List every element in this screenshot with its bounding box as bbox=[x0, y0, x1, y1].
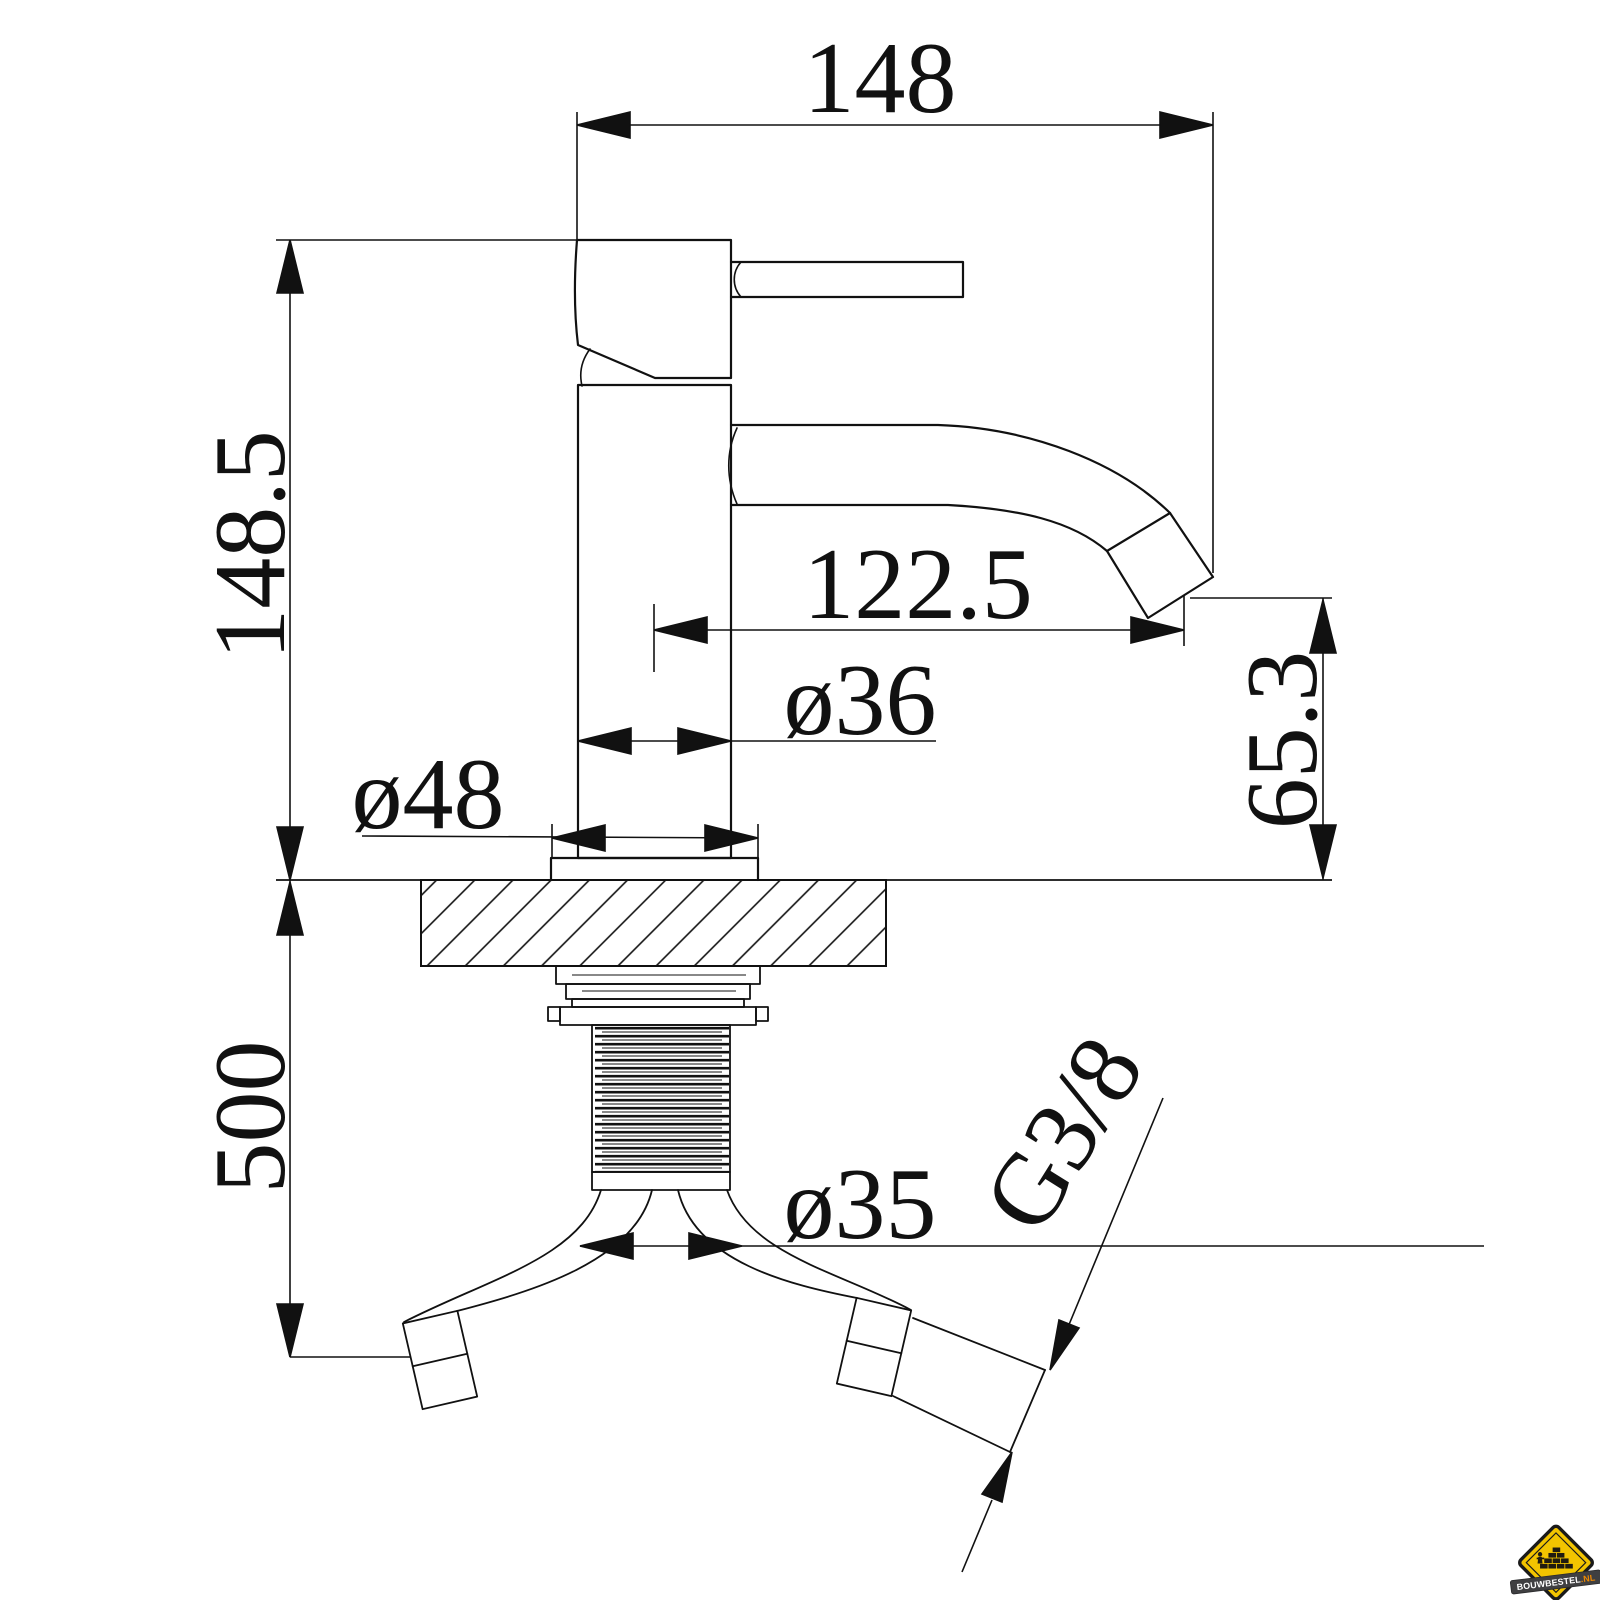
right-hose-connector bbox=[837, 1298, 911, 1396]
dim-base-diameter: ø48 bbox=[352, 738, 759, 858]
arrow-up bbox=[277, 240, 303, 293]
dim-base-diameter-label: ø48 bbox=[352, 738, 505, 851]
bouwbestel-logo: BOUWBESTEL.NL bbox=[1510, 1525, 1600, 1600]
faucet-cap bbox=[575, 240, 731, 378]
dim-outlet-height: 65.3 bbox=[1190, 598, 1339, 880]
handle-lever bbox=[731, 262, 963, 297]
dim-body-diameter-label: ø36 bbox=[784, 644, 937, 757]
supply-hoses bbox=[403, 1190, 1045, 1452]
callout-thread-size-label: G3/8 bbox=[962, 1018, 1166, 1251]
arrow-right bbox=[1131, 617, 1184, 643]
right-hose-end-face bbox=[1010, 1370, 1045, 1452]
arrow-left bbox=[580, 1233, 633, 1259]
left-hose-connector bbox=[403, 1311, 477, 1409]
lock-nut-tab-right bbox=[756, 1007, 768, 1021]
lock-nut-tab-left bbox=[548, 1007, 560, 1021]
hose-end-pointer bbox=[962, 1452, 1012, 1572]
arrow-down bbox=[1310, 825, 1336, 878]
technical-drawing-canvas: 148 148.5 500 122.5 65.3 bbox=[0, 0, 1600, 1600]
arrow-left bbox=[578, 728, 631, 754]
dim-body-height-label: 148.5 bbox=[194, 430, 307, 660]
left-hose-outer bbox=[404, 1190, 601, 1322]
arrow-right bbox=[689, 1233, 742, 1259]
callout-thread-size: G3/8 bbox=[962, 1018, 1166, 1370]
cap-pivot-arc bbox=[581, 349, 590, 386]
leader-arrow bbox=[1050, 1320, 1079, 1370]
handle-end-arc bbox=[734, 262, 741, 297]
mounting-hardware bbox=[548, 966, 768, 1190]
dim-hole-diameter-label: ø35 bbox=[784, 1148, 937, 1261]
arrow-left bbox=[654, 617, 707, 643]
dim-hose-length-label: 500 bbox=[194, 1041, 307, 1194]
right-hose-tail-top bbox=[913, 1318, 1045, 1370]
arrow-down bbox=[277, 1304, 303, 1357]
dim-spout-reach-label: 122.5 bbox=[803, 528, 1033, 641]
pointer-arrowhead bbox=[982, 1452, 1012, 1502]
faucet-dimension-drawing: 148 148.5 500 122.5 65.3 bbox=[0, 0, 1600, 1600]
arrow-up bbox=[1310, 600, 1336, 653]
dim-outlet-height-label: 65.3 bbox=[1226, 651, 1339, 830]
arrow-down bbox=[277, 827, 303, 880]
spout-top-curve bbox=[731, 425, 1170, 513]
arrow-right bbox=[1160, 112, 1213, 138]
threaded-shank bbox=[592, 1025, 730, 1172]
spout-nozzle bbox=[1107, 513, 1213, 618]
dim-body-diameter: ø36 bbox=[578, 644, 937, 757]
logo-suffix-text: .NL bbox=[1580, 1572, 1596, 1584]
arrow-right bbox=[678, 728, 731, 754]
spacer-plate bbox=[572, 999, 744, 1007]
countertop-section bbox=[421, 880, 886, 966]
dim-hose-length: 500 bbox=[194, 880, 411, 1357]
right-hose-tail-bottom bbox=[893, 1396, 1010, 1452]
dim-overall-width-label: 148 bbox=[804, 22, 957, 135]
arrow-up bbox=[277, 882, 303, 935]
lock-nut bbox=[560, 1007, 756, 1025]
arrow-left bbox=[577, 112, 630, 138]
base-plate bbox=[551, 858, 758, 880]
shank-collar bbox=[592, 1172, 730, 1190]
